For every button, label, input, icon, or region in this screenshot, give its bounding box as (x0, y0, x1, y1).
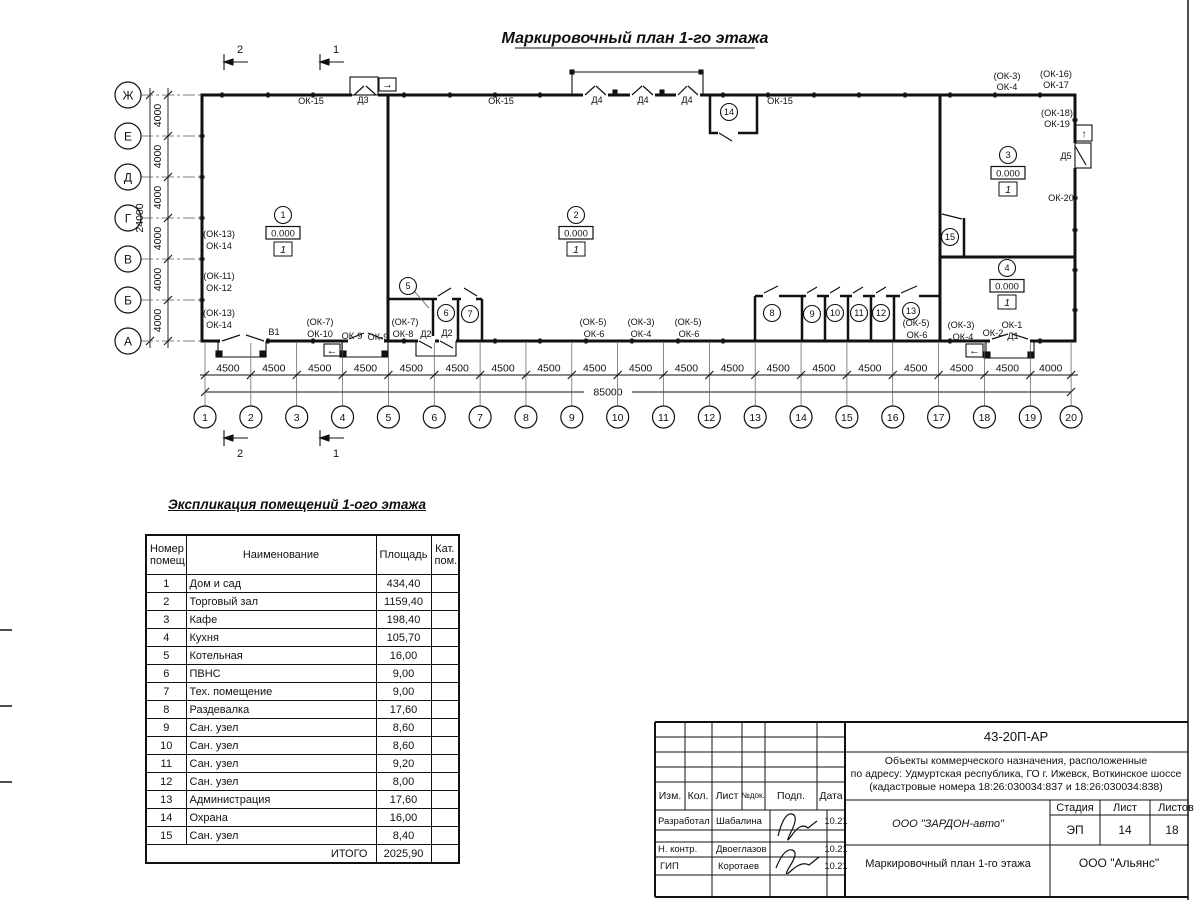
schedule-cell (431, 755, 459, 773)
schedule-cell (431, 647, 459, 665)
window-door-tag: ОК-15 (298, 96, 324, 106)
dimension-value: 4500 (812, 363, 836, 375)
section-arrow-icon (224, 59, 233, 65)
column-axis-label: 6 (431, 412, 437, 424)
schedule-cell: 16,00 (376, 809, 431, 827)
room-number: 12 (876, 308, 886, 318)
window-door-tag: (ОК-5) (675, 317, 702, 327)
window-door-tag: ОК-14 (206, 320, 232, 330)
room-number: 11 (854, 308, 864, 318)
window-door-tag: (ОК-13) (203, 308, 235, 318)
room-number: 15 (945, 232, 955, 242)
project-line-2: по адресу: Удмуртская республика, ГО г. … (851, 768, 1182, 780)
row-grid: ЖЕДГВБА400040004000400040004000 (115, 82, 202, 354)
room-marker: 20.0001 (559, 207, 593, 257)
exit-up-arrow-icon: ↑ (1081, 129, 1086, 141)
room-marker: 12 (873, 305, 890, 322)
column-axis-label: 12 (704, 412, 716, 424)
window-door-tag: ОК-14 (206, 241, 232, 251)
dimension-value: 4500 (445, 363, 469, 375)
dimension-value: 4500 (262, 363, 286, 375)
room-number: 3 (1005, 150, 1010, 160)
window-door-tag: ОК-17 (1043, 80, 1069, 90)
design-company: ООО "ЗАРДОН-авто" (892, 818, 1005, 830)
room-marker: 10.0001 (266, 207, 300, 257)
room-number: 1 (280, 210, 285, 220)
drawing-name: Маркировочный план 1-го этажа (865, 858, 1031, 870)
window-door-tag: ОК-20 (1048, 193, 1074, 203)
row-axis-label: Ж (122, 89, 133, 103)
window-door-tag: ОК-6 (679, 329, 700, 339)
schedule-cell (431, 809, 459, 827)
dimension-value: 4500 (858, 363, 882, 375)
row-axis-label: Б (124, 294, 132, 308)
room-number: 5 (405, 281, 410, 291)
dimension-value: 4000 (152, 186, 164, 210)
window-door-tag: Д2 (420, 329, 431, 339)
schedule-row: 6ПВНС9,00 (146, 665, 459, 683)
schedule-cell: ПВНС (186, 665, 376, 683)
room-number: 14 (724, 107, 734, 117)
schedule-row: 2Торговый зал1159,40 (146, 593, 459, 611)
window-door-tag: (ОК-7) (307, 317, 334, 327)
column-axis-label: 1 (202, 412, 208, 424)
room-marker: 14 (721, 104, 738, 121)
project-line-3: (кадастровые номера 18:26:030034:837 и 1… (869, 781, 1163, 793)
schedule-cell: 1159,40 (376, 593, 431, 611)
section-mark-label: 2 (237, 44, 243, 56)
walls (202, 95, 1075, 341)
schedule-cell: 6 (146, 665, 186, 683)
schedule-cell (431, 827, 459, 845)
room-marker: 5 (400, 278, 417, 295)
schedule-cell: 4 (146, 629, 186, 647)
dimension-value: 4000 (152, 145, 164, 169)
schedule-cell: 8,40 (376, 827, 431, 845)
exit-right-arrow-icon: → (382, 79, 393, 91)
row-axis-label: Д (124, 171, 132, 185)
window-door-tag: Д5 (1060, 151, 1071, 161)
column-axis-label: 16 (887, 412, 899, 424)
role-developer: Разработал (658, 816, 710, 827)
schedule-cell: 12 (146, 773, 186, 791)
room-marker: 9 (804, 306, 821, 323)
schedule-cell: Сан. узел (186, 719, 376, 737)
room-number: 6 (443, 308, 448, 318)
dimension-value: 4500 (721, 363, 745, 375)
row-axis-label: В (124, 253, 132, 267)
schedule-row: 4Кухня105,70 (146, 629, 459, 647)
window-door-tag: ОК-2 (983, 328, 1004, 338)
floor-elevation: 0.000 (996, 169, 1020, 180)
window-door-tag: Д4 (681, 95, 692, 105)
schedule-cell: Тех. помещение (186, 683, 376, 701)
schedule-cell: Кухня (186, 629, 376, 647)
schedule-header-row: Номер помещ.НаименованиеПлощадьКат. пом. (146, 535, 459, 575)
column-axis-label: 14 (795, 412, 807, 424)
schedule-cell: Сан. узел (186, 737, 376, 755)
window-door-tag: Д2 (441, 328, 452, 338)
role-ncontrol: Н. контр. (658, 844, 697, 855)
schedule-row: 15Сан. узел8,40 (146, 827, 459, 845)
schedule-cell (431, 629, 459, 647)
col-ndok: №док. (741, 791, 764, 800)
schedule-cell: 8,60 (376, 737, 431, 755)
schedule-cell (431, 791, 459, 809)
schedule-cell (431, 683, 459, 701)
column-axis-label: 7 (477, 412, 483, 424)
schedule-cell: Сан. узел (186, 773, 376, 791)
dimension-value: 4000 (1039, 363, 1063, 375)
column-axis-label: 20 (1065, 412, 1077, 424)
role-gip: ГИП (660, 861, 679, 872)
window-door-tag: (ОК-3) (994, 71, 1021, 81)
window-door-tag: Д3 (357, 95, 368, 105)
doc-number: 43-20П-АР (984, 729, 1048, 744)
schedule-cell: 9 (146, 719, 186, 737)
col-data: Дата (819, 790, 842, 802)
signature (778, 814, 817, 840)
dimension-value: 4500 (629, 363, 653, 375)
schedule-cell (431, 719, 459, 737)
floor-elevation: 0.000 (995, 282, 1019, 293)
column-axis-label: 11 (658, 412, 669, 424)
schedule-cell: Раздевалка (186, 701, 376, 719)
schedule-cell: 14 (146, 809, 186, 827)
window-door-tag: Д1 (1007, 331, 1018, 341)
name-developer: Шабалина (716, 816, 763, 827)
room-number: 2 (573, 210, 578, 220)
schedule-cell (431, 845, 459, 864)
window-door-tag: ОК-4 (631, 329, 652, 339)
room-marker: 10 (827, 305, 844, 322)
col-podp: Подп. (777, 790, 805, 802)
window-door-tag: (ОК-11) (203, 271, 234, 281)
floor-type: 1 (280, 244, 286, 256)
door-leaves (222, 86, 1086, 348)
column-axis-label: 10 (612, 412, 624, 424)
schedule-cell (431, 575, 459, 593)
dimension-value: 4000 (152, 104, 164, 128)
schedule-cell: 2 (146, 593, 186, 611)
section-arrow-icon (320, 59, 329, 65)
dimension-value: 4500 (766, 363, 790, 375)
schedule-cell: 9,20 (376, 755, 431, 773)
section-arrow-icon (320, 435, 329, 441)
schedule-row: 7Тех. помещение9,00 (146, 683, 459, 701)
column-axis-label: 15 (841, 412, 853, 424)
window-door-tag: ОК-12 (206, 283, 232, 293)
signature (776, 850, 819, 874)
window-door-tags: ОК-15Д3ОК-15Д4Д4Д4ОК-15(ОК-3)ОК-4(ОК-16)… (203, 69, 1074, 342)
schedule-cell: 3 (146, 611, 186, 629)
schedule-cell: 13 (146, 791, 186, 809)
column-axis-label: 4 (340, 412, 346, 424)
floor-type: 1 (1004, 297, 1010, 309)
sheet-value: 14 (1118, 823, 1132, 837)
exit-left-arrow-icon: ← (969, 345, 980, 357)
sheet-label: Лист (1113, 802, 1137, 814)
schedule-cell: 8,60 (376, 719, 431, 737)
room-markers: 10.000120.000130.000140.0001567891011121… (266, 104, 1025, 323)
schedule-row: 3Кафе198,40 (146, 611, 459, 629)
stage-value: ЭП (1066, 823, 1083, 837)
room-number: 8 (769, 308, 774, 318)
schedule-header-cell: Кат. пом. (431, 535, 459, 575)
section-mark-label: 1 (333, 448, 339, 460)
schedule-row: 10Сан. узел8,60 (146, 737, 459, 755)
schedule-row: 14Охрана16,00 (146, 809, 459, 827)
window-door-tag: ОК-4 (953, 332, 974, 342)
schedule-row: 11Сан. узел9,20 (146, 755, 459, 773)
window-door-tag: (ОК-5) (580, 317, 607, 327)
room-number: 13 (906, 306, 916, 316)
floor-elevation: 0.000 (564, 229, 588, 240)
schedule-cell: Сан. узел (186, 827, 376, 845)
room-marker: 13 (903, 303, 920, 320)
dimension-value: 4500 (491, 363, 515, 375)
schedule-cell: 15 (146, 827, 186, 845)
schedule-table: Номер помещ.НаименованиеПлощадьКат. пом.… (145, 534, 460, 864)
schedule-row: 13Администрация17,60 (146, 791, 459, 809)
dimension-value: 4500 (308, 363, 332, 375)
schedule-cell: 11 (146, 755, 186, 773)
room-number: 4 (1004, 263, 1009, 273)
dimension-value: 4500 (950, 363, 974, 375)
schedule-row: 9Сан. узел8,60 (146, 719, 459, 737)
window-door-tag: (ОК-3) (628, 317, 655, 327)
dimension-value: 4500 (904, 363, 928, 375)
window-door-tag: ОК-10 (307, 329, 333, 339)
row-axis-label: Г (125, 212, 132, 226)
schedule-header-cell: Номер помещ. (146, 535, 186, 575)
date-ncontrol: 10.21 (825, 844, 848, 854)
schedule-cell (431, 701, 459, 719)
floor-type: 1 (573, 244, 579, 256)
room-marker: 40.0001 (990, 260, 1024, 310)
total-label: ИТОГО (146, 845, 376, 864)
date-developer: 10.21 (825, 816, 848, 826)
window-door-tag: ОК-19 (1044, 119, 1070, 129)
room-number: 9 (809, 309, 814, 319)
schedule-header-cell: Наименование (186, 535, 376, 575)
window-door-tag: (ОК-13) (203, 229, 235, 239)
col-kol: Кол. (688, 790, 709, 802)
col-izm: Изм. (659, 790, 682, 802)
room-number: 7 (467, 309, 472, 319)
column-axis-label: 5 (385, 412, 391, 424)
dimension-value: 4000 (152, 268, 164, 292)
col-list: Лист (716, 790, 739, 802)
schedule-cell: Кафе (186, 611, 376, 629)
drawing-sheet: Маркировочный план 1-го этажа 2 1 2 1 (0, 0, 1200, 900)
schedule-cell: 105,70 (376, 629, 431, 647)
window-door-tag: (ОК-5) (903, 318, 930, 328)
dimension-value: 4500 (583, 363, 607, 375)
room-marker: 6 (438, 305, 455, 322)
room-number: 10 (830, 308, 840, 318)
room-marker: 8 (764, 305, 781, 322)
dimension-value: 4500 (354, 363, 378, 375)
schedule-cell: 16,00 (376, 647, 431, 665)
schedule-cell: 17,60 (376, 701, 431, 719)
porches-vestibules (216, 70, 1091, 358)
dimension-value: 4500 (675, 363, 699, 375)
name-ncontrol: Двоеглазов (716, 844, 767, 855)
column-axis-label: 2 (248, 412, 254, 424)
dimension-value: 4000 (152, 309, 164, 333)
sheets-value: 18 (1165, 823, 1179, 837)
total-width-dimension: 85000 (593, 387, 622, 399)
wall-ticks (200, 93, 1078, 344)
column-axis-label: 17 (933, 412, 945, 424)
window-door-tag: ОК-8 (393, 329, 414, 339)
schedule-cell: 8,00 (376, 773, 431, 791)
schedule-cell: 10 (146, 737, 186, 755)
column-axis-label: 9 (569, 412, 575, 424)
floor-elevation: 0.000 (271, 229, 295, 240)
exit-left-arrow-icon: ← (327, 345, 338, 357)
window-door-tag: ОК-9 (368, 332, 389, 342)
stage-label: Стадия (1056, 802, 1094, 814)
window-door-tag: Д4 (637, 95, 648, 105)
contractor: ООО "Альянс" (1079, 856, 1159, 870)
dimension-value: 4000 (152, 227, 164, 251)
room-marker: 11 (851, 305, 868, 322)
window-door-tag: (ОК-16) (1040, 69, 1072, 79)
dimension-value: 4500 (400, 363, 424, 375)
date-gip: 10.21 (825, 861, 848, 871)
window-door-tag: ОК-1 (1002, 320, 1023, 330)
window-door-tag: ОК-6 (907, 330, 928, 340)
schedule-cell (431, 773, 459, 791)
dimension-value: 4500 (216, 363, 240, 375)
window-door-tag: ОК-15 (488, 96, 514, 106)
schedule-cell: 9,00 (376, 665, 431, 683)
schedule-cell: 198,40 (376, 611, 431, 629)
schedule-cell: 5 (146, 647, 186, 665)
dimension-value: 4500 (537, 363, 561, 375)
column-axis-label: 13 (749, 412, 761, 424)
schedule-cell: Сан. узел (186, 755, 376, 773)
schedule-row: 12Сан. узел8,00 (146, 773, 459, 791)
column-axis-label: 8 (523, 412, 529, 424)
section-mark-label: 2 (237, 448, 243, 460)
schedule-row: 5Котельная16,00 (146, 647, 459, 665)
floor-type: 1 (1005, 184, 1011, 196)
schedule-cell: Дом и сад (186, 575, 376, 593)
section-mark-label: 1 (333, 44, 339, 56)
room-marker: 30.0001 (991, 147, 1025, 197)
wall-openings (220, 90, 1079, 345)
window-door-tag: (ОК-18) (1041, 108, 1073, 118)
schedule-row: 1Дом и сад434,40 (146, 575, 459, 593)
section-arrow-icon (224, 435, 233, 441)
room-marker: 7 (462, 306, 479, 323)
schedule-cell (431, 593, 459, 611)
total-value: 2025,90 (376, 845, 431, 864)
schedule-cell (431, 611, 459, 629)
project-line-1: Объекты коммерческого назначения, распол… (885, 755, 1148, 767)
schedule-cell: Торговый зал (186, 593, 376, 611)
schedule-cell (431, 737, 459, 755)
window-door-tag: ОК-9 (342, 331, 363, 341)
schedule-cell: 17,60 (376, 791, 431, 809)
schedule-cell: Администрация (186, 791, 376, 809)
row-axis-label: А (124, 335, 132, 349)
window-door-tag: В1 (268, 327, 279, 337)
room-schedule: Экспликация помещений 1-ого этажа Номер … (145, 497, 461, 864)
page-title: Маркировочный план 1-го этажа (502, 30, 769, 47)
room-marker: 15 (942, 229, 959, 246)
schedule-cell (431, 665, 459, 683)
schedule-cell: 9,00 (376, 683, 431, 701)
window-door-tag: ОК-6 (584, 329, 605, 339)
window-door-tag: (ОК-7) (392, 317, 419, 327)
schedule-title: Экспликация помещений 1-ого этажа (168, 497, 461, 512)
schedule-cell: 7 (146, 683, 186, 701)
column-axis-label: 18 (979, 412, 991, 424)
schedule-total-row: ИТОГО2025,90 (146, 845, 459, 864)
window-door-tag: ОК-15 (767, 96, 793, 106)
window-door-tag: ОК-4 (997, 82, 1018, 92)
window-door-tag: (ОК-3) (948, 320, 975, 330)
sheets-label: Листов (1158, 802, 1194, 814)
row-axis-label: Е (124, 130, 132, 144)
schedule-cell: 1 (146, 575, 186, 593)
schedule-cell: Котельная (186, 647, 376, 665)
schedule-cell: 8 (146, 701, 186, 719)
schedule-header-cell: Площадь (376, 535, 431, 575)
schedule-cell: 434,40 (376, 575, 431, 593)
window-door-tag: Д4 (591, 95, 602, 105)
column-axis-label: 3 (294, 412, 300, 424)
schedule-cell: Охрана (186, 809, 376, 827)
name-gip: Коротаев (718, 861, 759, 872)
schedule-row: 8Раздевалка17,60 (146, 701, 459, 719)
column-axis-label: 19 (1024, 412, 1036, 424)
dimension-value: 4500 (996, 363, 1020, 375)
